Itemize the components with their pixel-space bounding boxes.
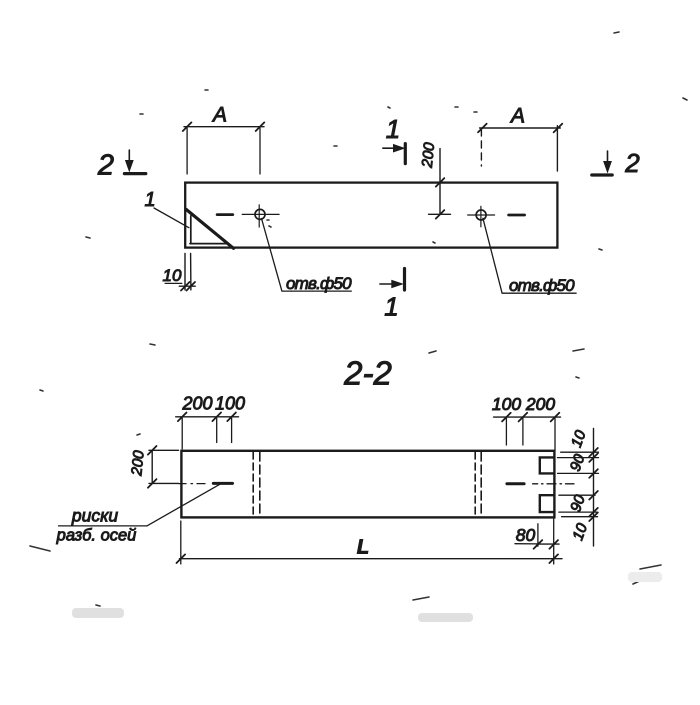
svg-text:200: 200 xyxy=(419,141,439,169)
svg-text:1: 1 xyxy=(384,292,398,322)
svg-text:отв.ф50: отв.ф50 xyxy=(509,276,575,295)
svg-text:80: 80 xyxy=(516,525,536,545)
svg-text:A: A xyxy=(509,105,525,128)
svg-text:A: A xyxy=(211,104,227,127)
svg-text:риски: риски xyxy=(71,506,118,526)
svg-text:2-2: 2-2 xyxy=(343,355,392,392)
svg-text:10: 10 xyxy=(163,266,182,285)
svg-text:разб. осей: разб. осей xyxy=(56,527,137,545)
svg-text:200: 200 xyxy=(525,394,555,414)
svg-text:200: 200 xyxy=(128,449,148,477)
svg-text:100: 100 xyxy=(492,394,521,414)
svg-text:1: 1 xyxy=(386,114,400,144)
svg-text:L: L xyxy=(357,537,369,559)
svg-text:2: 2 xyxy=(97,150,114,182)
svg-text:отв.ф50: отв.ф50 xyxy=(286,274,352,293)
svg-text:100: 100 xyxy=(215,394,245,414)
svg-text:2: 2 xyxy=(624,148,640,178)
svg-text:200: 200 xyxy=(181,394,212,414)
